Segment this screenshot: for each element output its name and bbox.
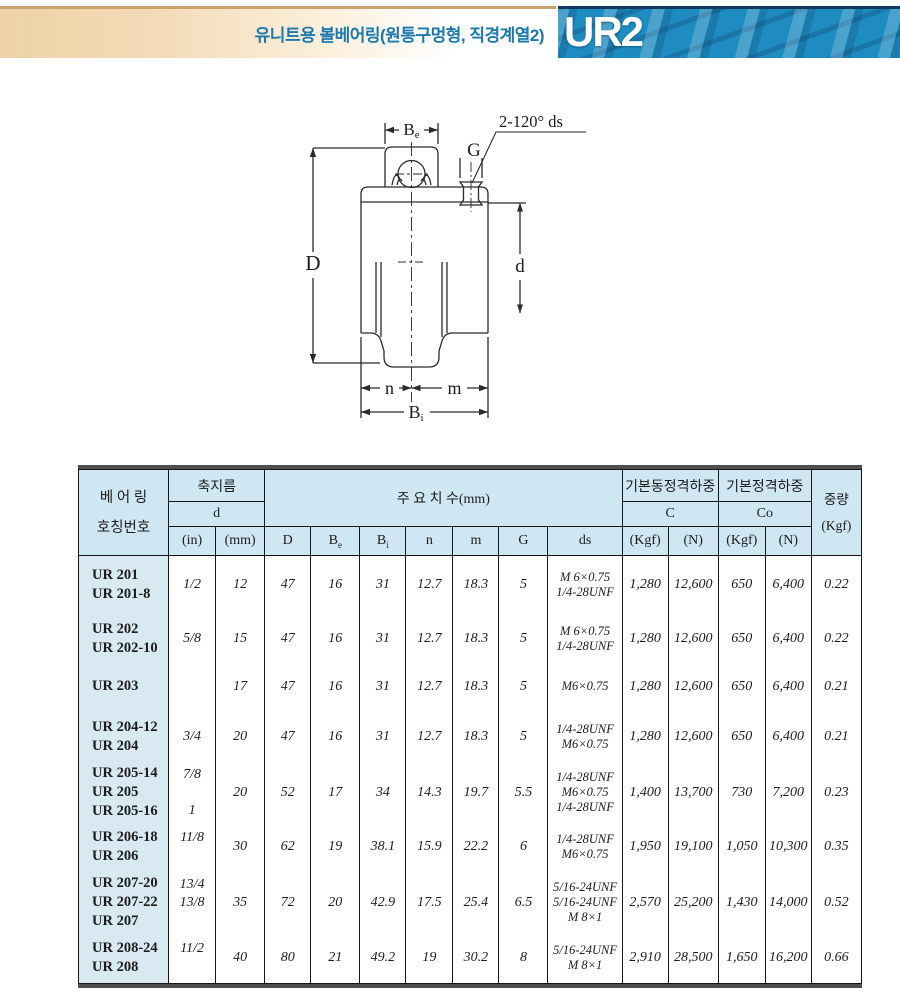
cell-wt: 0.21 [811,710,861,764]
cell-line: UR 208-24 [92,939,168,958]
cell-G: 5 [499,556,548,614]
cell-Bi: 34 [360,764,406,822]
cell-line: 1 [169,802,215,820]
col-header-co-n: (N) [765,527,811,556]
cell-c_n: 28,500 [668,934,718,984]
cell-line: UR 201-8 [92,585,168,604]
table-row: UR 206-18UR 20611/830621938.115.922.261/… [79,822,862,872]
cell-line [169,912,215,930]
cell-line: UR 207 [92,912,168,931]
col-header-static-load: 기본정격하중 [718,470,811,502]
cell-c_n: 25,200 [668,872,718,934]
col-header-main-dims: 주 요 치 수(mm) [265,470,622,527]
cell-mm: 30 [216,822,265,872]
cell-m: 18.3 [453,614,499,664]
cell-line: UR 205-16 [92,802,168,821]
cell-n: 12.7 [406,614,453,664]
cell-co_kgf: 1,650 [718,934,765,984]
drawing-outline [310,123,586,418]
cell-line: UR 204-12 [92,718,168,737]
banner-left-gradient: 유니트용 볼베어링(원통구멍형, 직경계열2) [0,6,556,58]
cell-G: 8 [499,934,548,984]
cell-G: 6.5 [499,872,548,934]
cell-line: 5/16-24UNF [548,943,621,958]
cell-co_n: 6,400 [765,556,811,614]
cell-n: 12.7 [406,664,453,710]
cell-line: UR 205 [92,783,168,802]
cell-line: 5/8 [169,630,215,648]
cell-wt: 0.52 [811,872,861,934]
col-header-shaft-dia: 축지름 [169,470,265,502]
bearing-no-line1: 베 어 링 [79,483,168,513]
cell-in: 13/413/8 [169,872,216,934]
table-row: UR 205-14UR 205UR 205-167/812052173414.3… [79,764,862,822]
table-row: UR 2031747163112.718.35M6×0.751,28012,60… [79,664,862,710]
col-header-Bi: Bi [360,527,406,556]
cell-D: 62 [265,822,311,872]
cell-ds: 1/4-28UNFM6×0.75 [548,710,622,764]
page-title: 유니트용 볼베어링(원통구멍형, 직경계열2) [255,21,544,46]
cell-c_n: 12,600 [668,556,718,614]
table-row: UR 201UR 201-81/21247163112.718.35M 6×0.… [79,556,862,614]
label-m: m [447,378,461,398]
cell-line: 1/4-28UNF [548,832,621,847]
cell-co_kgf: 650 [718,556,765,614]
cell-D: 47 [265,710,311,764]
cell-line: 1/2 [169,576,215,594]
cell-n: 12.7 [406,556,453,614]
cell-m: 30.2 [453,934,499,984]
cell-line: 1/4-28UNF [548,585,621,600]
bearing-dimension-drawing: Be G 2-120° ds D d n m Bi [268,90,620,448]
cell-names: UR 207-20UR 207-22UR 207 [79,872,169,934]
cell-Be: 16 [311,664,360,710]
cell-names: UR 205-14UR 205UR 205-16 [79,764,169,822]
cell-D: 72 [265,872,311,934]
cell-ds: 5/16-24UNFM 8×1 [548,934,622,984]
cell-co_kgf: 1,430 [718,872,765,934]
cell-mm: 15 [216,614,265,664]
cell-line: UR 202-10 [92,639,168,658]
cell-c_n: 12,600 [668,614,718,664]
cell-G: 6 [499,822,548,872]
table-body: UR 201UR 201-81/21247163112.718.35M 6×0.… [79,556,862,984]
banner-photo-strip: UR2 [558,6,900,58]
cell-names: UR 204-12UR 204 [79,710,169,764]
weight-line2: (Kgf) [812,513,861,539]
cell-c_n: 19,100 [668,822,718,872]
col-header-co-kgf: (Kgf) [718,527,765,556]
label-n: n [385,378,394,398]
spec-table-wrap: 베 어 링 호칭번호 축지름 주 요 치 수(mm) 기본동정격하중 기본정격하… [78,465,862,988]
cell-line: 1/4-28UNF [548,639,621,654]
cell-c_n: 12,600 [668,664,718,710]
cell-c_kgf: 1,280 [622,710,668,764]
table-row: UR 202UR 202-105/81547163112.718.35M 6×0… [79,614,862,664]
cell-m: 18.3 [453,556,499,614]
cell-in: 1/2 [169,556,216,614]
cell-line: UR 203 [92,677,168,696]
cell-c_kgf: 1,950 [622,822,668,872]
cell-n: 12.7 [406,710,453,764]
cell-co_n: 16,200 [765,934,811,984]
col-header-m: m [453,527,499,556]
cell-line: 11/8 [169,829,215,847]
cell-line: UR 205-14 [92,764,168,783]
cell-line: 1/4-28UNF [548,770,621,785]
cell-wt: 0.23 [811,764,861,822]
col-header-D: D [265,527,311,556]
label-screw-note: 2-120° ds [499,112,563,131]
cell-Bi: 49.2 [360,934,406,984]
col-header-ds: ds [548,527,622,556]
cell-Be: 16 [311,614,360,664]
cell-line: UR 208 [92,958,168,977]
cell-Bi: 31 [360,614,406,664]
label-Bi: Bi [408,402,423,424]
cell-in: 3/4 [169,710,216,764]
cell-wt: 0.22 [811,614,861,664]
cell-wt: 0.66 [811,934,861,984]
cell-mm: 40 [216,934,265,984]
col-header-C: C [622,502,718,527]
cell-names: UR 206-18UR 206 [79,822,169,872]
cell-line: UR 202 [92,620,168,639]
cell-mm: 12 [216,556,265,614]
cell-c_n: 12,600 [668,710,718,764]
cell-mm: 20 [216,710,265,764]
cell-co_n: 10,300 [765,822,811,872]
cell-line [169,958,215,976]
cell-names: UR 202UR 202-10 [79,614,169,664]
cell-in [169,664,216,710]
cell-line [169,784,215,802]
cell-c_kgf: 1,280 [622,614,668,664]
cell-c_kgf: 1,280 [622,556,668,614]
cell-mm: 17 [216,664,265,710]
cell-Bi: 31 [360,664,406,710]
cell-n: 17.5 [406,872,453,934]
cell-line: M6×0.75 [548,679,621,694]
cell-D: 80 [265,934,311,984]
cell-Be: 16 [311,556,360,614]
header-banner: 유니트용 볼베어링(원통구멍형, 직경계열2) UR2 [0,6,900,58]
cell-wt: 0.22 [811,556,861,614]
cell-co_n: 6,400 [765,664,811,710]
cell-line: 3/4 [169,728,215,746]
cell-D: 47 [265,556,311,614]
col-header-c-kgf: (Kgf) [622,527,668,556]
bearing-no-line2: 호칭번호 [79,513,168,543]
col-header-n: n [406,527,453,556]
col-header-G: G [499,527,548,556]
cell-Bi: 42.9 [360,872,406,934]
col-header-bearing-no: 베 어 링 호칭번호 [79,470,169,556]
cell-mm: 35 [216,872,265,934]
label-D: D [305,251,320,275]
label-d: d [515,256,525,277]
cell-co_n: 6,400 [765,710,811,764]
cell-mm: 20 [216,764,265,822]
cell-D: 47 [265,614,311,664]
cell-Bi: 31 [360,556,406,614]
cell-names: UR 201UR 201-8 [79,556,169,614]
cell-line: UR 206 [92,847,168,866]
cell-line [169,678,215,696]
cell-G: 5 [499,614,548,664]
cell-G: 5 [499,664,548,710]
cell-line: UR 206-18 [92,828,168,847]
cell-Bi: 31 [360,710,406,764]
cell-wt: 0.35 [811,822,861,872]
cell-Bi: 38.1 [360,822,406,872]
cell-m: 25.4 [453,872,499,934]
cell-names: UR 203 [79,664,169,710]
table-header: 베 어 링 호칭번호 축지름 주 요 치 수(mm) 기본동정격하중 기본정격하… [79,470,862,556]
cell-ds: 1/4-28UNFM6×0.75 [548,822,622,872]
cell-line: 11/2 [169,940,215,958]
cell-Be: 21 [311,934,360,984]
cell-c_kgf: 2,570 [622,872,668,934]
cell-G: 5.5 [499,764,548,822]
cell-G: 5 [499,710,548,764]
cell-c_kgf: 2,910 [622,934,668,984]
cell-Be: 16 [311,710,360,764]
cell-line: 5/16-24UNF [548,895,621,910]
cell-line: M 6×0.75 [548,624,621,639]
cell-Be: 19 [311,822,360,872]
cell-n: 14.3 [406,764,453,822]
col-header-Co: Co [718,502,811,527]
table-row: UR 208-24UR 20811/240802149.21930.285/16… [79,934,862,984]
cell-Be: 20 [311,872,360,934]
cell-co_n: 6,400 [765,614,811,664]
series-code: UR2 [558,11,642,53]
cell-line: M6×0.75 [548,785,621,800]
cell-line: 1/4-28UNF [548,800,621,815]
spec-table: 베 어 링 호칭번호 축지름 주 요 치 수(mm) 기본동정격하중 기본정격하… [78,469,862,984]
cell-in: 11/2 [169,934,216,984]
cell-co_kgf: 730 [718,764,765,822]
cell-line: M 8×1 [548,958,621,973]
weight-line1: 중량 [812,487,861,513]
col-header-weight: 중량 (Kgf) [811,470,861,556]
cell-ds: M6×0.75 [548,664,622,710]
cell-co_n: 7,200 [765,764,811,822]
cell-line: M 8×1 [548,910,621,925]
cell-line: 7/8 [169,766,215,784]
cell-ds: 5/16-24UNF5/16-24UNFM 8×1 [548,872,622,934]
cell-line: UR 207-20 [92,874,168,893]
cell-ds: M 6×0.751/4-28UNF [548,556,622,614]
cell-line: M 6×0.75 [548,570,621,585]
table-row: UR 207-20UR 207-22UR 20713/413/835722042… [79,872,862,934]
col-header-c-n: (N) [668,527,718,556]
cell-co_kgf: 1,050 [718,822,765,872]
cell-co_n: 14,000 [765,872,811,934]
cell-line: M6×0.75 [548,737,621,752]
cell-line: UR 201 [92,566,168,585]
label-Be: Be [403,120,419,141]
col-header-in: (in) [169,527,216,556]
cell-c_kgf: 1,400 [622,764,668,822]
cell-line: 13/4 [169,876,215,894]
cell-c_n: 13,700 [668,764,718,822]
col-header-d: d [169,502,265,527]
col-header-dynamic-load: 기본동정격하중 [622,470,718,502]
cell-n: 15.9 [406,822,453,872]
cell-in: 5/8 [169,614,216,664]
table-row: UR 204-12UR 2043/42047163112.718.351/4-2… [79,710,862,764]
cell-in: 7/81 [169,764,216,822]
cell-m: 22.2 [453,822,499,872]
label-G: G [467,140,481,161]
cell-c_kgf: 1,280 [622,664,668,710]
cell-line: M6×0.75 [548,847,621,862]
col-header-mm: (mm) [216,527,265,556]
cell-D: 47 [265,664,311,710]
cell-line: UR 207-22 [92,893,168,912]
cell-m: 18.3 [453,664,499,710]
cell-co_kgf: 650 [718,710,765,764]
cell-m: 18.3 [453,710,499,764]
cell-co_kgf: 650 [718,614,765,664]
cell-in: 11/8 [169,822,216,872]
cell-line: 5/16-24UNF [548,880,621,895]
cell-wt: 0.21 [811,664,861,710]
cell-ds: M 6×0.751/4-28UNF [548,614,622,664]
cell-line: UR 204 [92,737,168,756]
cell-names: UR 208-24UR 208 [79,934,169,984]
cell-m: 19.7 [453,764,499,822]
cell-line: 1/4-28UNF [548,722,621,737]
col-header-Be: Be [311,527,360,556]
cell-n: 19 [406,934,453,984]
cell-co_kgf: 650 [718,664,765,710]
cell-line: 13/8 [169,894,215,912]
cell-D: 52 [265,764,311,822]
cell-Be: 17 [311,764,360,822]
cell-line [169,847,215,865]
cell-ds: 1/4-28UNFM6×0.751/4-28UNF [548,764,622,822]
